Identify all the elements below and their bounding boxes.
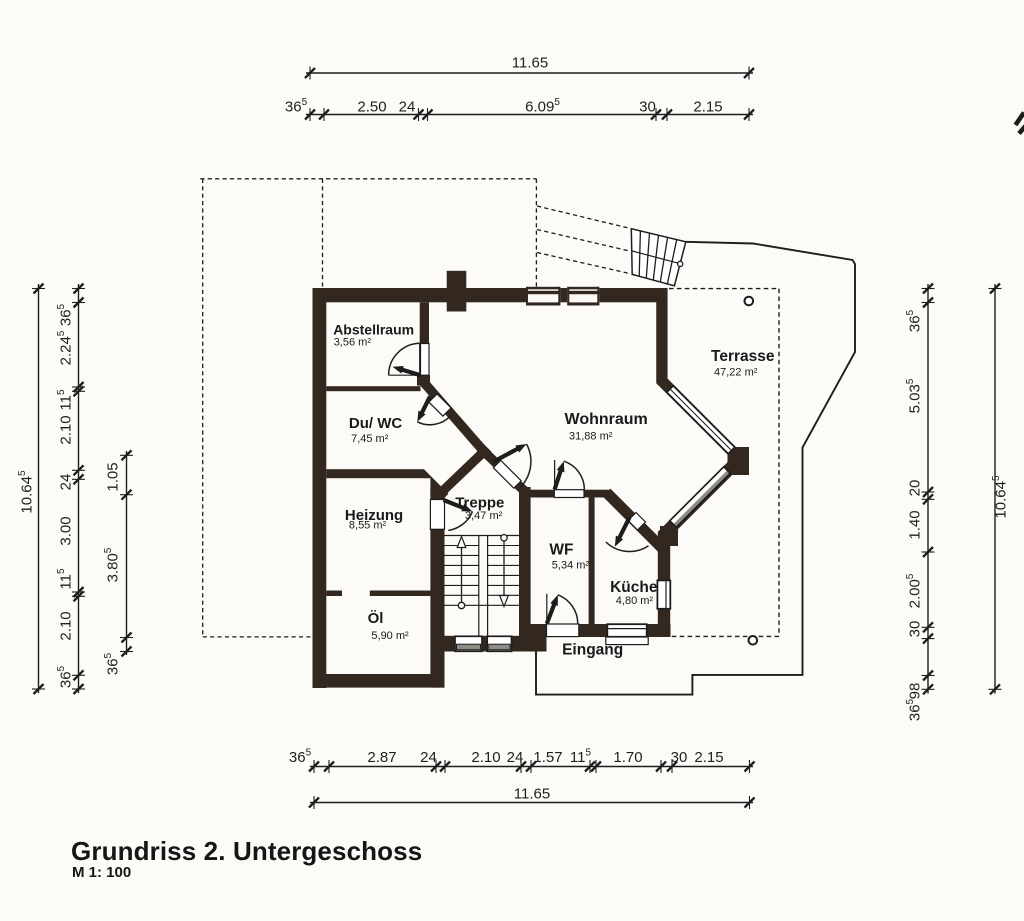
svg-text:Küche: Küche [610,579,658,596]
svg-text:30: 30 [639,99,656,116]
svg-text:M 1: 100: M 1: 100 [72,864,131,881]
svg-text:24: 24 [420,749,437,766]
svg-text:10.645: 10.645 [991,475,1010,519]
svg-text:1.70: 1.70 [613,749,642,766]
svg-text:2.15: 2.15 [693,99,722,116]
svg-text:10.645: 10.645 [17,470,36,514]
svg-text:1.05: 1.05 [105,462,122,491]
svg-text:24: 24 [58,474,75,491]
svg-text:30: 30 [907,621,924,638]
svg-text:20: 20 [907,480,924,497]
svg-text:2.10: 2.10 [471,749,500,766]
svg-text:11.65: 11.65 [514,786,550,803]
svg-text:2.87: 2.87 [367,749,396,766]
svg-text:1.40: 1.40 [907,510,924,539]
svg-text:1.57: 1.57 [533,749,562,766]
svg-text:5,90 m²: 5,90 m² [371,630,409,642]
svg-text:4,80 m²: 4,80 m² [616,595,654,607]
svg-text:5,34 m²: 5,34 m² [552,559,590,571]
svg-text:Treppe: Treppe [455,495,504,512]
svg-text:Abstellraum: Abstellraum [333,322,414,338]
svg-text:Wohnraum: Wohnraum [565,411,648,428]
svg-text:7,45 m²: 7,45 m² [351,433,389,445]
svg-text:Du/ WC: Du/ WC [349,415,402,432]
svg-text:WF: WF [549,542,573,559]
svg-text:3.00: 3.00 [58,516,75,545]
svg-text:2.15: 2.15 [694,749,723,766]
svg-text:30: 30 [671,749,688,766]
svg-text:24: 24 [507,749,524,766]
svg-text:Terrasse: Terrasse [711,348,775,365]
svg-text:Öl: Öl [368,610,384,627]
svg-text:Grundriss 2. Untergeschoss: Grundriss 2. Untergeschoss [71,836,422,866]
svg-text:24: 24 [399,99,416,116]
svg-text:3,47 m²: 3,47 m² [465,510,503,522]
svg-text:Eingang: Eingang [562,641,623,658]
svg-text:2.10: 2.10 [58,415,75,444]
svg-text:98: 98 [907,683,924,700]
svg-text:47,22 m²: 47,22 m² [714,367,758,379]
svg-text:11.65: 11.65 [512,55,548,72]
svg-text:2.10: 2.10 [58,611,75,640]
svg-text:8,55 m²: 8,55 m² [349,520,387,532]
svg-text:2.50: 2.50 [357,99,386,116]
svg-text:3,56 m²: 3,56 m² [334,337,372,349]
svg-text:31,88 m²: 31,88 m² [569,430,613,442]
